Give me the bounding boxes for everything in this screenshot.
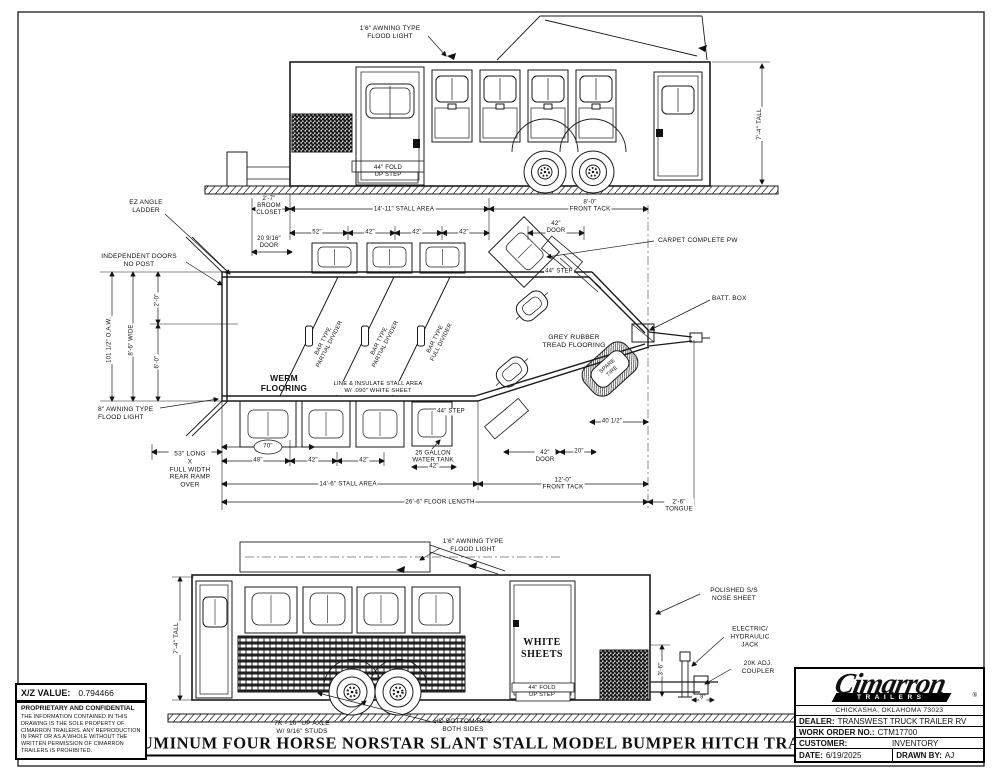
dim-20: 20" (573, 448, 584, 455)
note-rear-ramp: 53" LONG X FULL WIDTH REAR RAMP OVER (169, 451, 212, 490)
registered-trademark-icon: ® (973, 693, 977, 699)
dim-42-b: 42" (411, 229, 422, 236)
customer-value: INVENTORY (850, 739, 980, 748)
note-ez-ladder: EZ ANGLE LADDER (129, 199, 162, 215)
note-carpet: CARPET COMPLETE PW (658, 237, 738, 245)
drawn-by-value: AJ (945, 751, 954, 760)
sheet-border (18, 12, 984, 766)
note-bottom-rail: HD BOTTOM RAIL BOTH SIDES (434, 718, 492, 734)
dim-52: 52" (311, 229, 322, 236)
note-awning-flood-light-top: 1'6" AWNING TYPE FLOOD LIGHT (360, 25, 421, 41)
dim-broom-closet: 2'-7" BROOM CLOSET (255, 196, 282, 218)
front-tack-door-top (654, 72, 702, 180)
note-independent-doors: INDEPENDENT DOORS NO POST (101, 253, 177, 269)
dim-42-door-top: 42" DOOR (546, 221, 567, 235)
dim-floor-length: 26'-6" FLOOR LENGTH (404, 498, 475, 505)
drawn-by-label: DRAWN BY: (896, 751, 942, 760)
dealer-label: DEALER: (799, 717, 835, 726)
dim-stall-area-top: 14'-11" STALL AREA (373, 205, 436, 212)
note-grey-rubber: GREY RUBBER TREAD FLOORING (542, 334, 605, 350)
dim-height-top-view: 7'-4" TALL (756, 107, 764, 141)
note-water-tank: 25 GALLON WATER TANK (411, 450, 454, 465)
dim-40-half: 40 1/2" (601, 418, 623, 425)
dim-42-e: 42" (358, 457, 369, 464)
customer-row: CUSTOMER: INVENTORY (796, 737, 983, 748)
dim-42-a: 42" (364, 229, 375, 236)
note-white-sheets: WHITE SHEETS (521, 637, 563, 661)
note-nose-sheet: POLISHED S/S NOSE SHEET (710, 587, 758, 603)
work-order-value: CTM17700 (878, 728, 918, 737)
note-batt-box: BATT. BOX (712, 295, 747, 303)
dealer-value: TRANSWEST TRUCK TRAILER RV (838, 717, 967, 726)
note-awning-flood-light-bottomview: 1'6" AWNING TYPE FLOOD LIGHT (443, 538, 504, 554)
proprietary-box: PROPRIETARY AND CONFIDENTIAL THE INFORMA… (15, 701, 147, 760)
dim-2-0: 2'-0" (154, 293, 161, 308)
xz-value-box: X/Z VALUE: 0.794466 (15, 683, 147, 702)
dim-44-step-bottom: 44" STEP (436, 408, 466, 415)
dim-42-d: 42" (307, 457, 318, 464)
dim-door-20-9-16: 20 9/16" DOOR (256, 236, 282, 250)
manger-assemblies-top (312, 243, 465, 273)
gravel-guard-bottom (600, 650, 648, 700)
note-fold-up-step-top: 44" FOLD UP STEP (374, 165, 402, 179)
xz-value: 0.794466 (78, 688, 113, 698)
logo-trailers-band: TRAILERS (832, 693, 952, 702)
flood-light-icon (447, 45, 707, 60)
dim-wide: 8'-6" WIDE (128, 323, 135, 356)
dim-6-0: 6'-0" (154, 355, 161, 370)
note-jack: ELECTRIC/ HYDRAULIC JACK (730, 625, 769, 648)
note-fold-up-step-bottom: 44" FOLD UP STEP (528, 685, 555, 699)
dim-42-c: 42" (458, 229, 469, 236)
dim-3-6: 3'-6" (658, 662, 665, 677)
customer-label: CUSTOMER: (799, 739, 847, 748)
dim-44-step-top: 44" STEP (544, 268, 574, 275)
dim-stall-area-bottom: 14'-6" STALL AREA (318, 480, 377, 487)
note-line-insulate: LINE & INSULATE STALL AREA W/ .090" WHIT… (333, 381, 424, 395)
top-side-view (205, 16, 778, 194)
drawing-sheet: 1'6" AWNING TYPE FLOOD LIGHT7'-4" TALL44… (0, 0, 1000, 773)
xz-value-label: X/Z VALUE: (21, 688, 70, 698)
saddle-rack-2 (489, 350, 535, 394)
rear-door-bottomview (196, 581, 232, 698)
dim-42-door-bottom: 42" DOOR (535, 450, 556, 464)
dim-48: 48" (252, 457, 263, 464)
dim-height-bottom-view: 7'-4" TALL (173, 621, 181, 655)
company-address: CHICKASHA, OKLAHOMA 73023 (796, 705, 983, 715)
dim-oaw: 101 1/2" O.A.W. (106, 316, 113, 364)
bottom-side-view (168, 542, 810, 723)
date-label: DATE: (799, 751, 823, 760)
stall-windows-top (432, 70, 616, 142)
dim-front-tack-bottom: 12'-0" FRONT TACK (542, 477, 585, 492)
ground-line-top (205, 186, 778, 194)
work-order-row: WORK ORDER NO.: CTM17700 (796, 726, 983, 737)
title-block: Cimarron TRAILERS ® CHICKASHA, OKLAHOMA … (794, 667, 985, 763)
dim-front-tack-top: 8'-0" FRONT TACK (569, 199, 612, 214)
date-value: 6/19/2025 (826, 751, 862, 760)
proprietary-title: PROPRIETARY AND CONFIDENTIAL (21, 705, 141, 712)
proprietary-text: THE INFORMATION CONTAINED IN THIS DRAWIN… (21, 714, 141, 755)
note-coupler: 20K ADJ. COUPLER (742, 660, 775, 676)
dim-8: 8" (699, 695, 706, 702)
note-werm-flooring: WERM FLOORING (261, 373, 307, 393)
cimarron-logo: Cimarron TRAILERS ® (796, 669, 983, 705)
dealer-row: DEALER: TRANSWEST TRUCK TRAILER RV (796, 715, 983, 726)
saddle-rack-1 (509, 284, 555, 328)
work-order-label: WORK ORDER NO.: (799, 728, 875, 737)
note-awning-flood-light-rear: 8" AWNING TYPE FLOOD LIGHT (98, 406, 153, 422)
date-row: DATE: 6/19/2025 DRAWN BY: AJ (796, 748, 983, 762)
dim-42-f: 42" (428, 463, 439, 470)
dim-tongue: 2'-6" TONGUE (664, 499, 694, 514)
cad-drawing (0, 0, 1000, 773)
dim-70: 70" (263, 443, 272, 450)
gravel-guard-top (292, 114, 352, 152)
drawing-title: ALUMINUM FOUR HORSE NORSTAR SLANT STALL … (113, 734, 847, 757)
